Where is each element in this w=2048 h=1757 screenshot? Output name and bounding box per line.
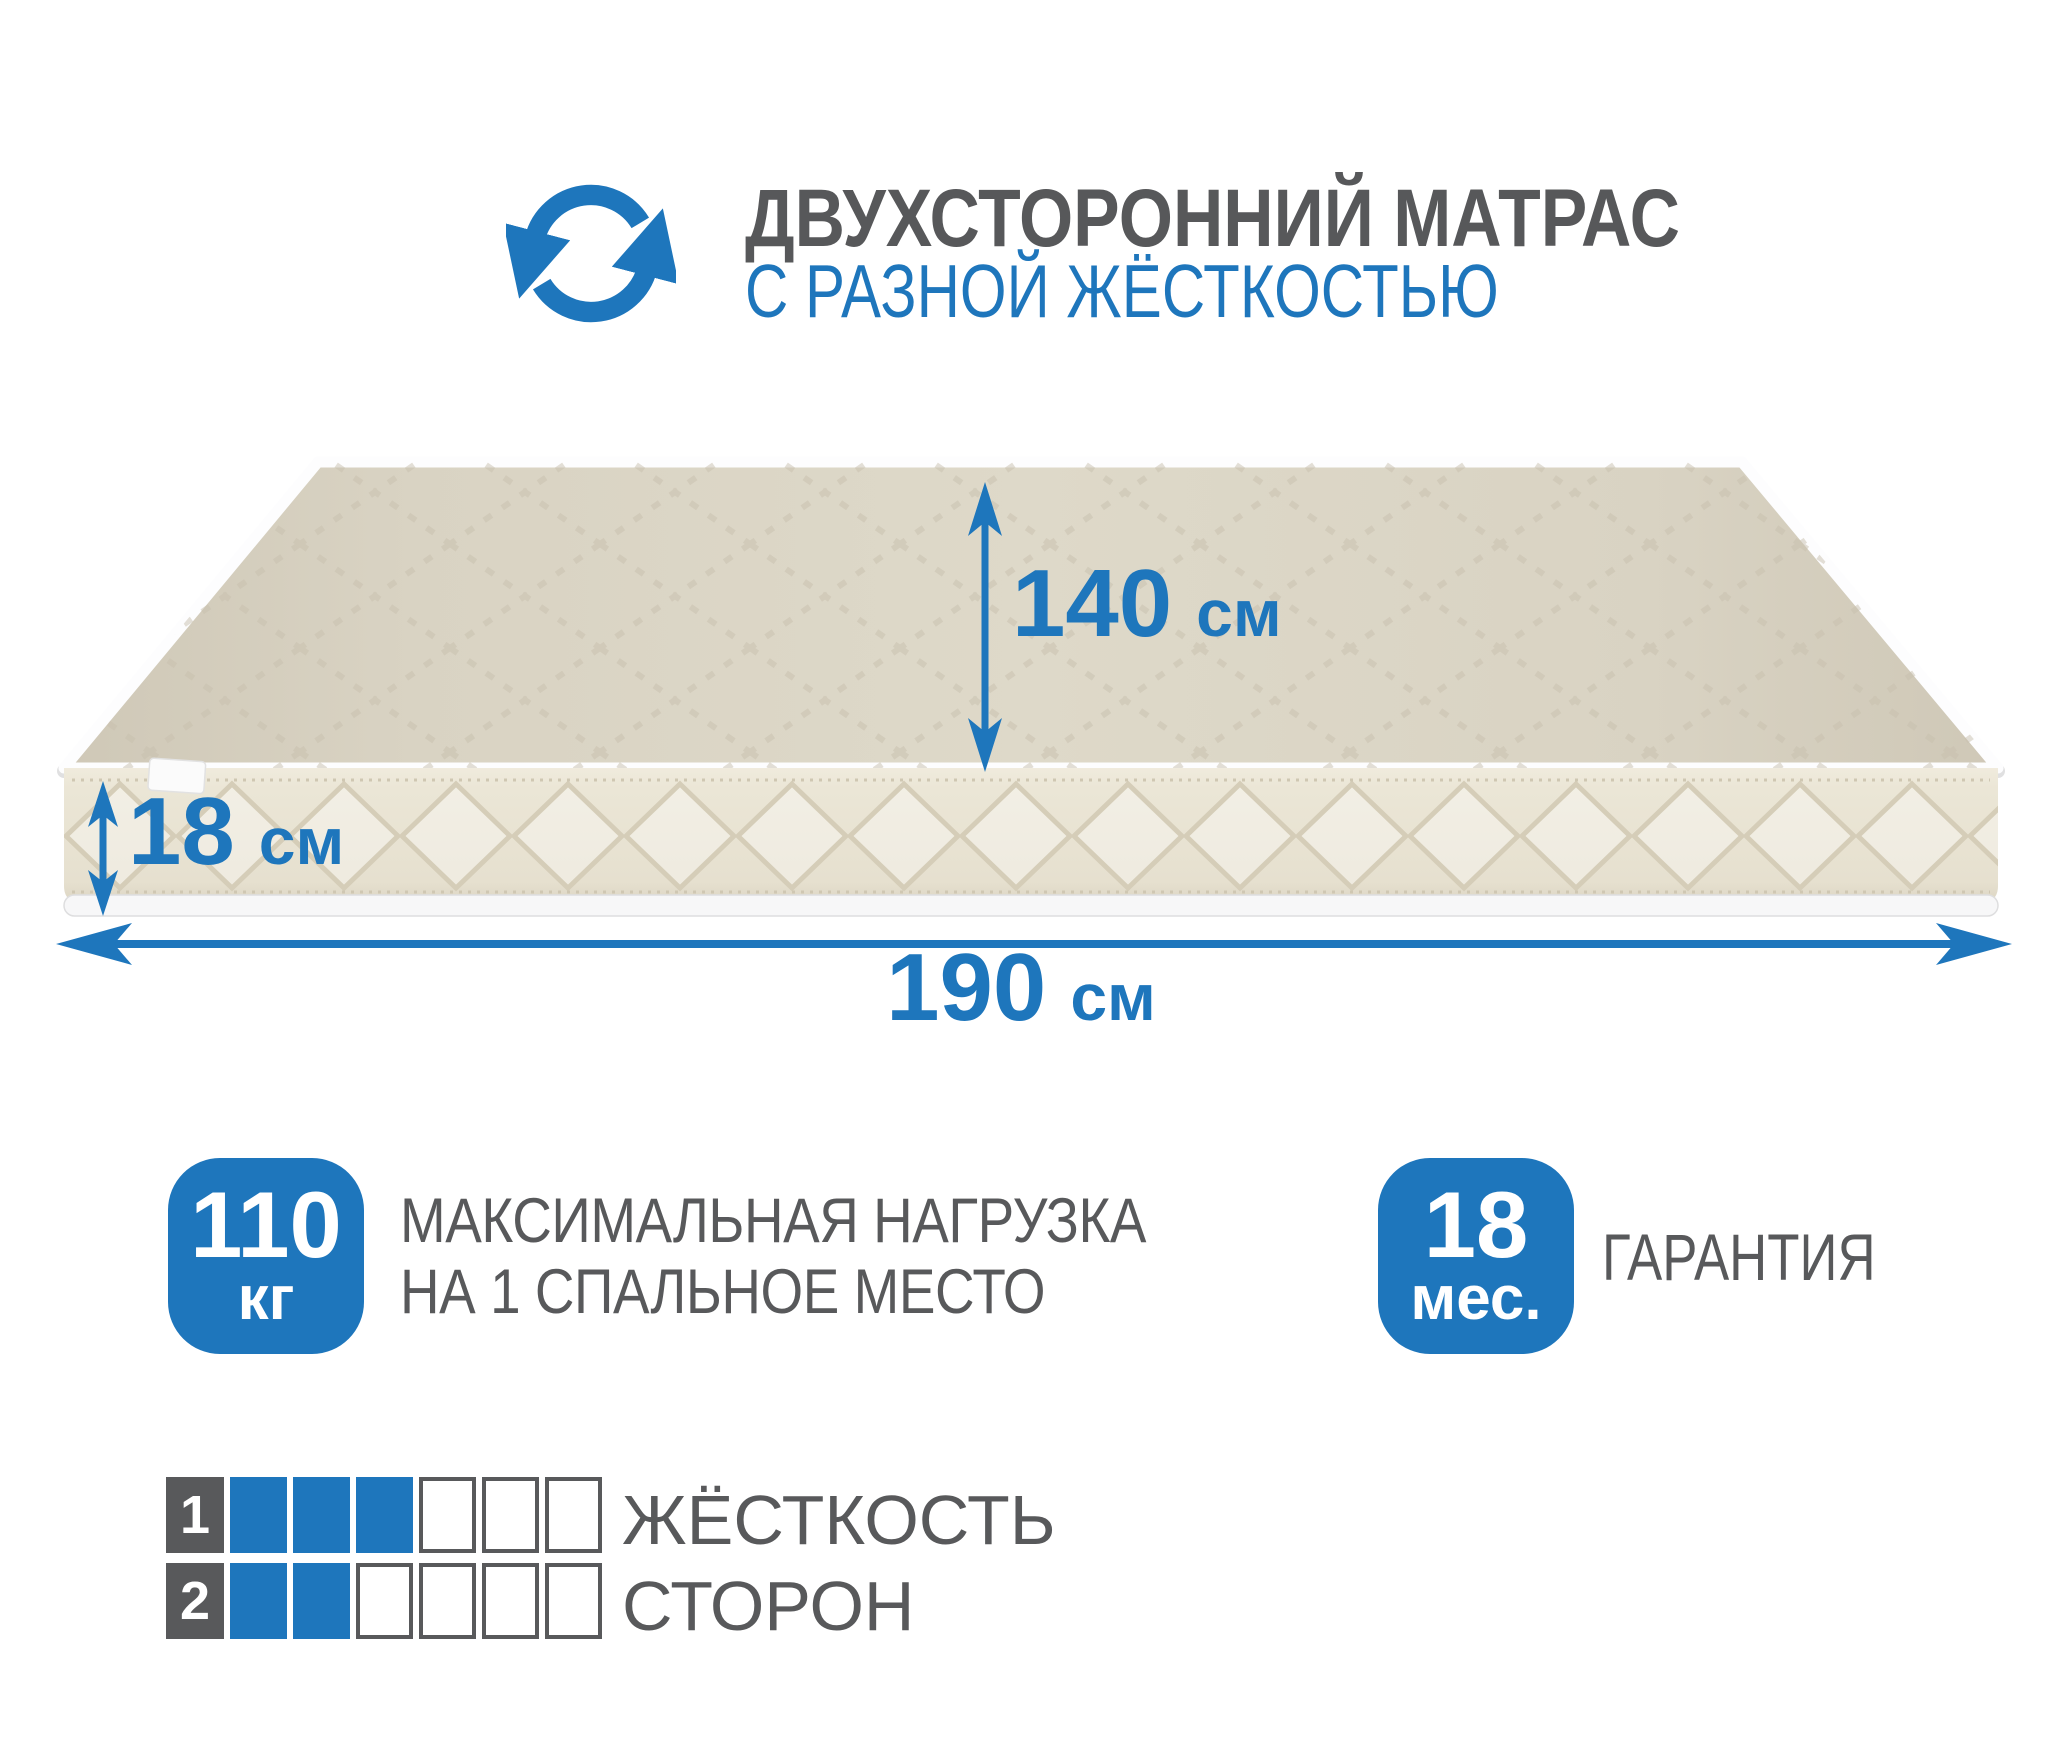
firmness-text-line2: СТОРОН	[622, 1563, 1056, 1649]
warranty-value: 18	[1424, 1182, 1529, 1268]
firmness-cell-empty	[419, 1563, 476, 1639]
firmness-cell-empty	[545, 1477, 602, 1553]
warranty-label: ГАРАНТИЯ	[1602, 1224, 1876, 1290]
rotate-arrows-icon	[506, 166, 676, 341]
firmness-cell-filled	[293, 1563, 350, 1639]
max-load-label-line1: МАКСИМАЛЬНАЯ НАГРУЗКА	[400, 1186, 1146, 1257]
firmness-cell-filled	[356, 1477, 413, 1553]
page-subtitle: С РАЗНОЙ ЖЁСТКОСТЬЮ	[745, 254, 1499, 329]
firmness-cell-filled	[230, 1477, 287, 1553]
firmness-cell-empty	[545, 1563, 602, 1639]
firmness-rows: 12	[166, 1477, 602, 1649]
height-dimension-label: 18 см	[128, 784, 344, 880]
width-value: 140	[1012, 556, 1172, 652]
warranty-unit: мес.	[1410, 1268, 1541, 1330]
firmness-cell-empty	[356, 1563, 413, 1639]
max-load-label: МАКСИМАЛЬНАЯ НАГРУЗКА НА 1 СПАЛЬНОЕ МЕСТ…	[400, 1186, 1146, 1328]
mattress-bottom-piping	[64, 895, 1998, 916]
max-load-label-line2: НА 1 СПАЛЬНОЕ МЕСТО	[400, 1257, 1146, 1328]
firmness-cell-empty	[419, 1477, 476, 1553]
length-dimension-label: 190 см	[521, 940, 1521, 1036]
firmness-side-number: 2	[166, 1563, 224, 1639]
firmness-cell-empty	[482, 1563, 539, 1639]
firmness-side-number: 1	[166, 1477, 224, 1553]
firmness-row: 1	[166, 1477, 602, 1553]
width-unit: см	[1196, 580, 1282, 646]
max-load-unit: кг	[238, 1268, 295, 1330]
mattress-illustration	[0, 440, 2048, 970]
firmness-cell-filled	[293, 1477, 350, 1553]
length-value: 190	[886, 940, 1046, 1036]
mattress-infographic: ДВУХСТОРОННИЙ МАТРАС С РАЗНОЙ ЖЁСТКОСТЬЮ	[0, 0, 2048, 1757]
length-unit: см	[1070, 964, 1156, 1030]
warranty-badge: 18 мес.	[1378, 1158, 1574, 1354]
firmness-cell-filled	[230, 1563, 287, 1639]
height-value: 18	[128, 784, 235, 880]
page-title: ДВУХСТОРОННИЙ МАТРАС	[745, 178, 1680, 260]
width-dimension-label: 140 см	[1012, 556, 1282, 652]
height-unit: см	[259, 808, 345, 874]
mattress-front-diamond-band	[64, 780, 1998, 892]
firmness-text: ЖЁСТКОСТЬ СТОРОН	[622, 1477, 1056, 1649]
firmness-text-line1: ЖЁСТКОСТЬ	[622, 1477, 1056, 1563]
rotate-arc-top	[535, 195, 640, 238]
max-load-value: 110	[190, 1182, 342, 1268]
firmness-row: 2	[166, 1563, 602, 1639]
firmness-cell-empty	[482, 1477, 539, 1553]
max-load-badge: 110 кг	[168, 1158, 364, 1354]
rotate-arc-bottom	[542, 269, 647, 312]
